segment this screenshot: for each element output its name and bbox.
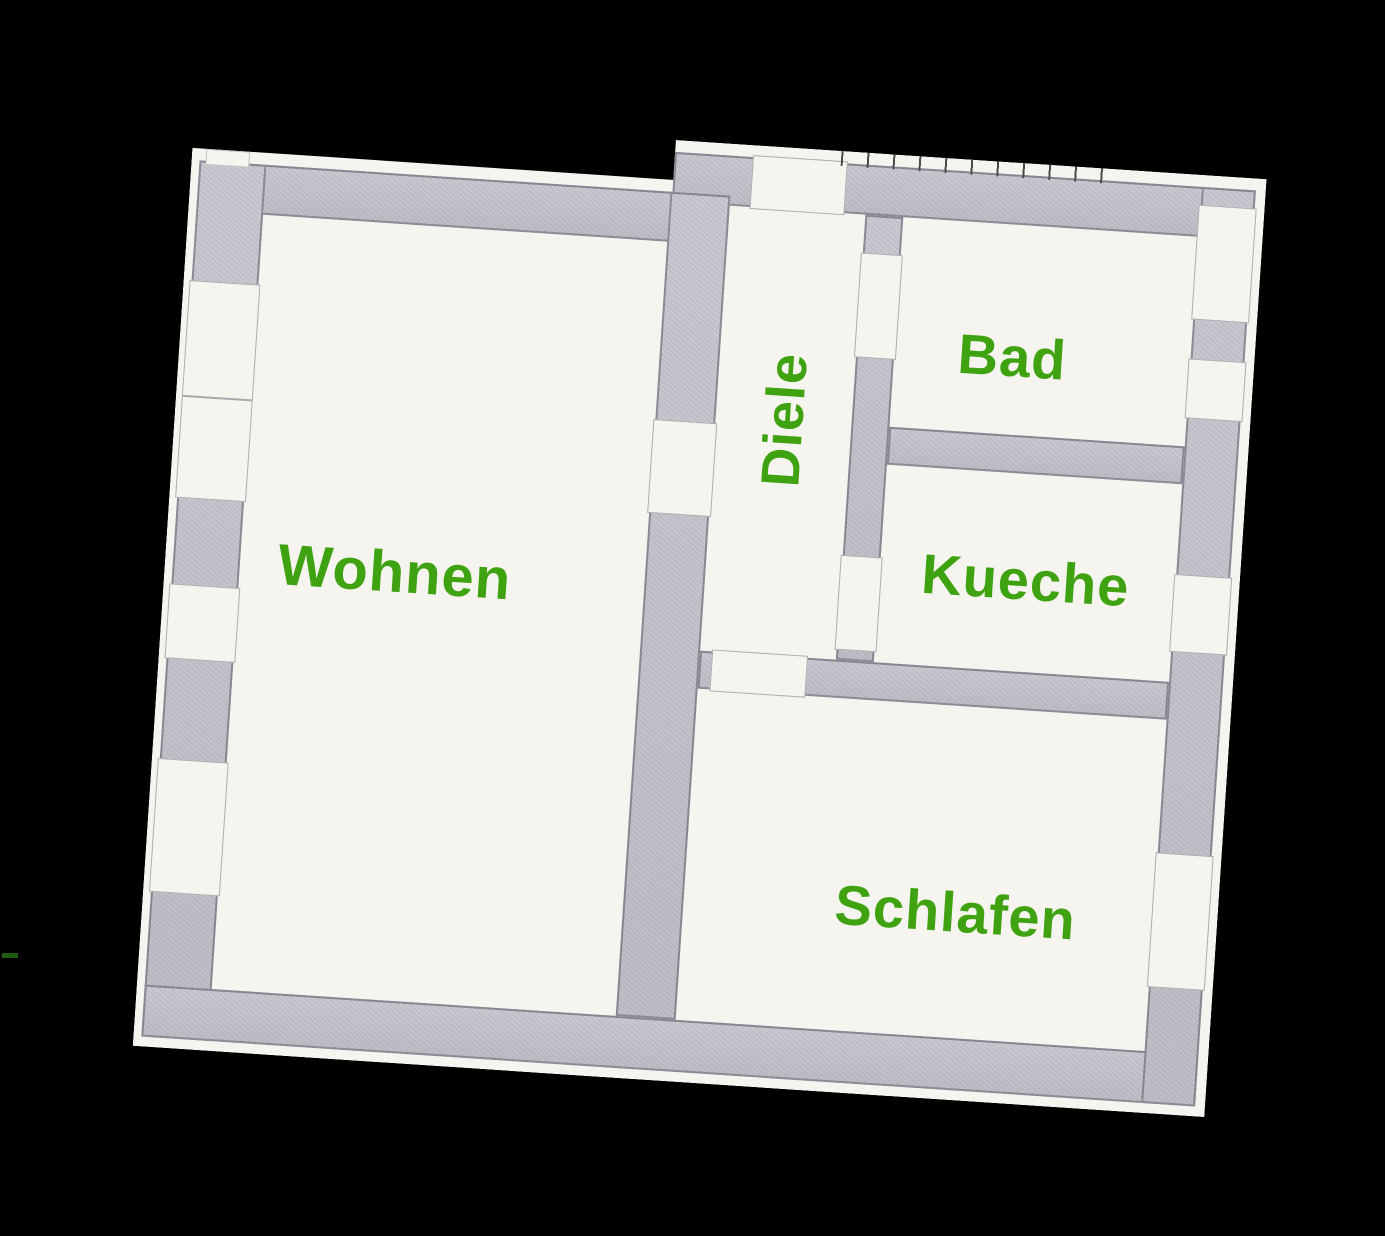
door-diele-bad bbox=[854, 252, 903, 360]
window-bad-small bbox=[1185, 358, 1247, 422]
door-diele-schlafen bbox=[709, 649, 808, 697]
floor-plan: Wohnen Diele Bad Kueche Schlafen bbox=[133, 108, 1267, 1117]
window-wohnen-upper bbox=[175, 280, 260, 502]
wall-notch-top-left bbox=[205, 149, 250, 168]
room-label-kueche: Kueche bbox=[919, 541, 1131, 620]
room-label-bad: Bad bbox=[956, 321, 1069, 393]
window-mullion bbox=[183, 395, 252, 402]
window-wohnen-lower bbox=[149, 758, 229, 896]
window-schlafen bbox=[1147, 852, 1214, 991]
window-bad bbox=[1191, 205, 1256, 324]
window-kueche bbox=[1169, 574, 1232, 656]
room-label-diele: Diele bbox=[749, 351, 820, 489]
scan-artifact-speck bbox=[2, 953, 18, 958]
window-wohnen-middle bbox=[164, 583, 240, 663]
door-wohnen-diele bbox=[647, 419, 717, 517]
door-entrance bbox=[750, 155, 848, 215]
door-diele-kueche bbox=[835, 555, 883, 653]
